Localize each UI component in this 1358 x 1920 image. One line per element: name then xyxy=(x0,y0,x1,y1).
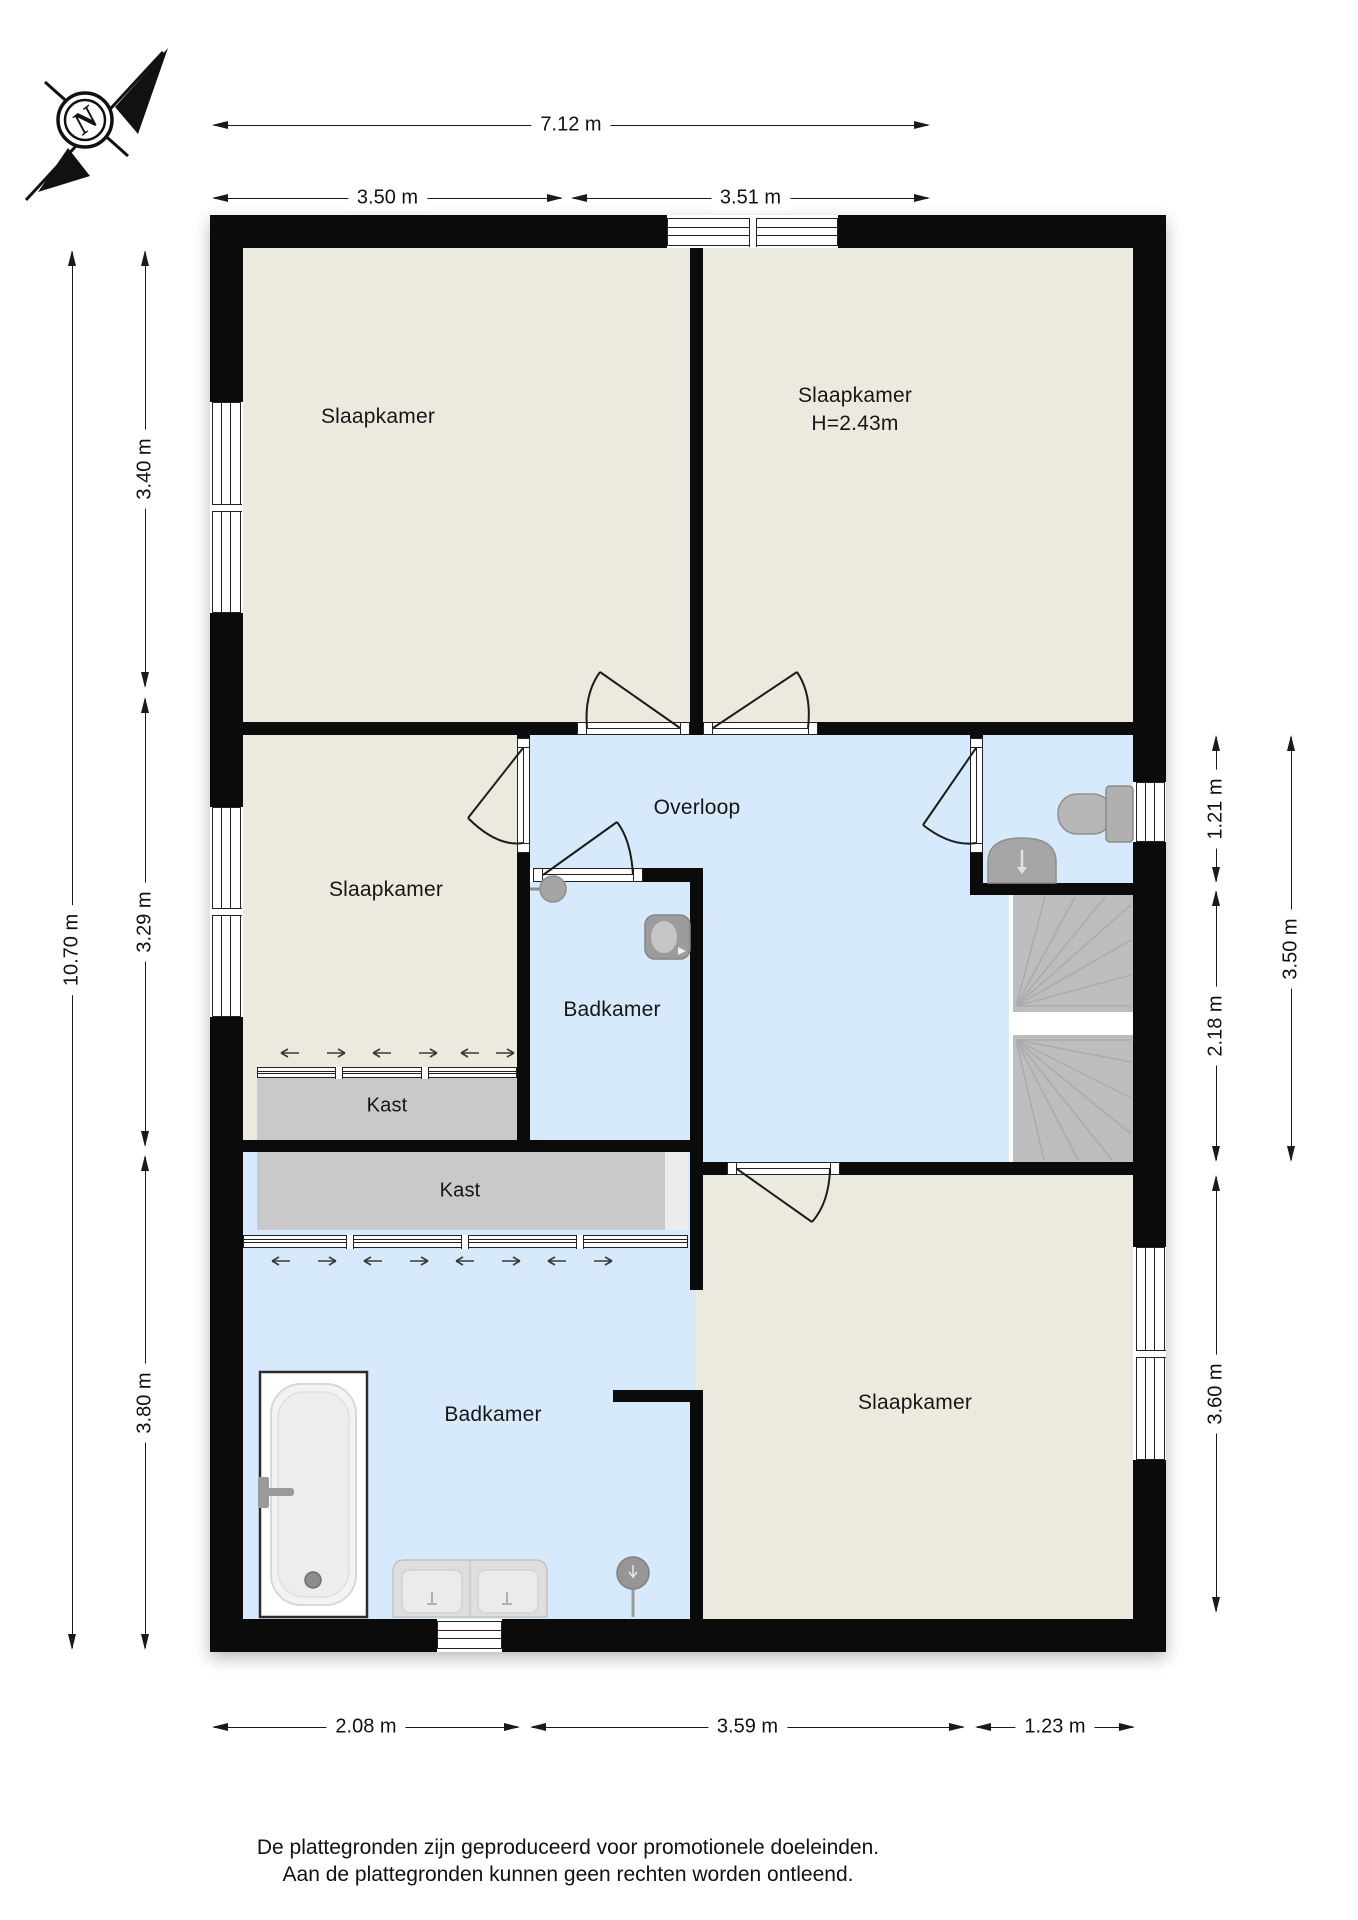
room-label-ceiling-height: H=2.43m xyxy=(811,412,898,436)
door-frame xyxy=(727,1162,737,1175)
dim-bottom-left: 2.08 m xyxy=(212,1721,520,1732)
closet-sliding-track xyxy=(243,1235,688,1248)
dim-label: 10.70 m xyxy=(59,905,84,995)
door-frame xyxy=(808,722,818,735)
window xyxy=(667,218,838,246)
dim-label: 3.80 m xyxy=(132,1363,157,1442)
door-threshold xyxy=(587,722,680,735)
door-threshold xyxy=(737,1162,830,1175)
dim-label: 3.50 m xyxy=(1278,909,1303,988)
door-frame xyxy=(970,738,983,748)
door-threshold xyxy=(543,868,633,882)
door-frame xyxy=(830,1162,840,1175)
room-label-bedroom-bottom-right: Slaapkamer xyxy=(858,1391,972,1415)
wall xyxy=(703,1162,727,1175)
dim-left-total: 10.70 m xyxy=(66,250,77,1650)
wall xyxy=(818,722,1133,735)
wall xyxy=(970,883,1133,895)
door-threshold xyxy=(713,722,808,735)
door-frame xyxy=(633,868,643,882)
floor-plan-page: N Slaapkamer Slaapkamer H=2.43m Slaapkam… xyxy=(0,0,1358,1920)
wall xyxy=(210,1619,437,1652)
dim-right-total: 3.50 m xyxy=(1285,735,1296,1162)
window xyxy=(212,402,241,613)
door-frame xyxy=(517,738,530,748)
room-label-bedroom-top-left: Slaapkamer xyxy=(321,405,435,429)
wall xyxy=(210,215,667,248)
room-bedroom-top-left xyxy=(243,248,690,722)
wall xyxy=(210,613,243,807)
room-label-bathroom-bottom: Badkamer xyxy=(444,1403,541,1427)
dim-top-left: 3.50 m xyxy=(212,192,563,203)
compass-label: N xyxy=(64,98,107,142)
dim-label: 3.51 m xyxy=(711,185,790,210)
wall xyxy=(502,1619,1166,1652)
wall xyxy=(690,1402,703,1619)
wall xyxy=(690,1152,703,1290)
door-frame xyxy=(533,868,543,882)
room-label-closet-lower: Kast xyxy=(440,1180,481,1203)
wall xyxy=(643,868,690,882)
dim-label: 2.08 m xyxy=(326,1714,405,1739)
wall xyxy=(1133,842,1166,1247)
window xyxy=(212,807,241,1017)
closet-sliding-track xyxy=(257,1067,517,1078)
room-bedroom-top-right xyxy=(703,248,1133,722)
door-frame xyxy=(970,843,983,853)
dim-label: 3.50 m xyxy=(348,185,427,210)
dim-left-middle: 3.29 m xyxy=(139,697,150,1147)
window xyxy=(1136,782,1165,842)
door-leaf xyxy=(970,748,983,843)
compass-north-icon: N xyxy=(18,30,188,220)
wall xyxy=(690,868,703,1140)
wall xyxy=(1133,215,1166,782)
wall xyxy=(690,248,703,735)
wall xyxy=(210,215,243,402)
wall xyxy=(243,1140,703,1152)
dim-label: 3.60 m xyxy=(1203,1354,1228,1433)
room-label-bathroom-middle: Badkamer xyxy=(563,998,660,1022)
room-label-bedroom-top-right: Slaapkamer xyxy=(798,384,912,408)
stairs-edge-strip xyxy=(1009,895,1013,1162)
room-label-closet-upper: Kast xyxy=(367,1095,408,1118)
dim-right-stairs: 2.18 m xyxy=(1210,890,1221,1162)
room-label-landing: Overloop xyxy=(654,796,741,820)
window xyxy=(1136,1247,1165,1460)
door-frame xyxy=(517,843,530,853)
dim-label: 3.29 m xyxy=(132,882,157,961)
closet-lower-open-end xyxy=(665,1152,688,1230)
dim-left-lower: 3.80 m xyxy=(139,1155,150,1650)
dim-top-total: 7.12 m xyxy=(212,119,930,130)
window xyxy=(437,1621,502,1649)
disclaimer-line-1: De plattegronden zijn geproduceerd voor … xyxy=(0,1834,1136,1861)
wall xyxy=(840,1162,1133,1175)
wall xyxy=(517,853,530,1152)
passage-bedroom-side xyxy=(696,1290,703,1390)
disclaimer: De plattegronden zijn geproduceerd voor … xyxy=(0,1834,1136,1888)
dim-label: 2.18 m xyxy=(1203,986,1228,1065)
disclaimer-line-2: Aan de plattegronden kunnen geen rechten… xyxy=(0,1861,1136,1888)
stairs-landing-gap xyxy=(1013,1012,1133,1035)
dim-label: 1.23 m xyxy=(1015,1714,1094,1739)
wall xyxy=(613,1390,703,1402)
wall xyxy=(210,1017,243,1652)
room-landing-upper xyxy=(530,735,970,868)
dim-label: 7.12 m xyxy=(531,112,610,137)
room-landing-lower xyxy=(703,868,970,1162)
room-label-bedroom-middle-left: Slaapkamer xyxy=(329,878,443,902)
dim-bottom-right: 1.23 m xyxy=(975,1721,1135,1732)
door-frame xyxy=(577,722,587,735)
wall xyxy=(838,215,1166,248)
dim-label: 3.40 m xyxy=(132,429,157,508)
dim-left-upper: 3.40 m xyxy=(139,250,150,688)
room-toilet xyxy=(983,735,1133,883)
dim-label: 3.59 m xyxy=(708,1714,787,1739)
door-leaf xyxy=(517,748,530,843)
wall xyxy=(243,722,577,735)
dim-bottom-middle: 3.59 m xyxy=(530,1721,965,1732)
door-frame xyxy=(680,722,690,735)
dim-right-bedroom: 3.60 m xyxy=(1210,1175,1221,1613)
dim-top-right: 3.51 m xyxy=(571,192,930,203)
dim-label: 1.21 m xyxy=(1203,769,1228,848)
door-frame xyxy=(703,722,713,735)
dim-right-toilet: 1.21 m xyxy=(1210,735,1221,883)
